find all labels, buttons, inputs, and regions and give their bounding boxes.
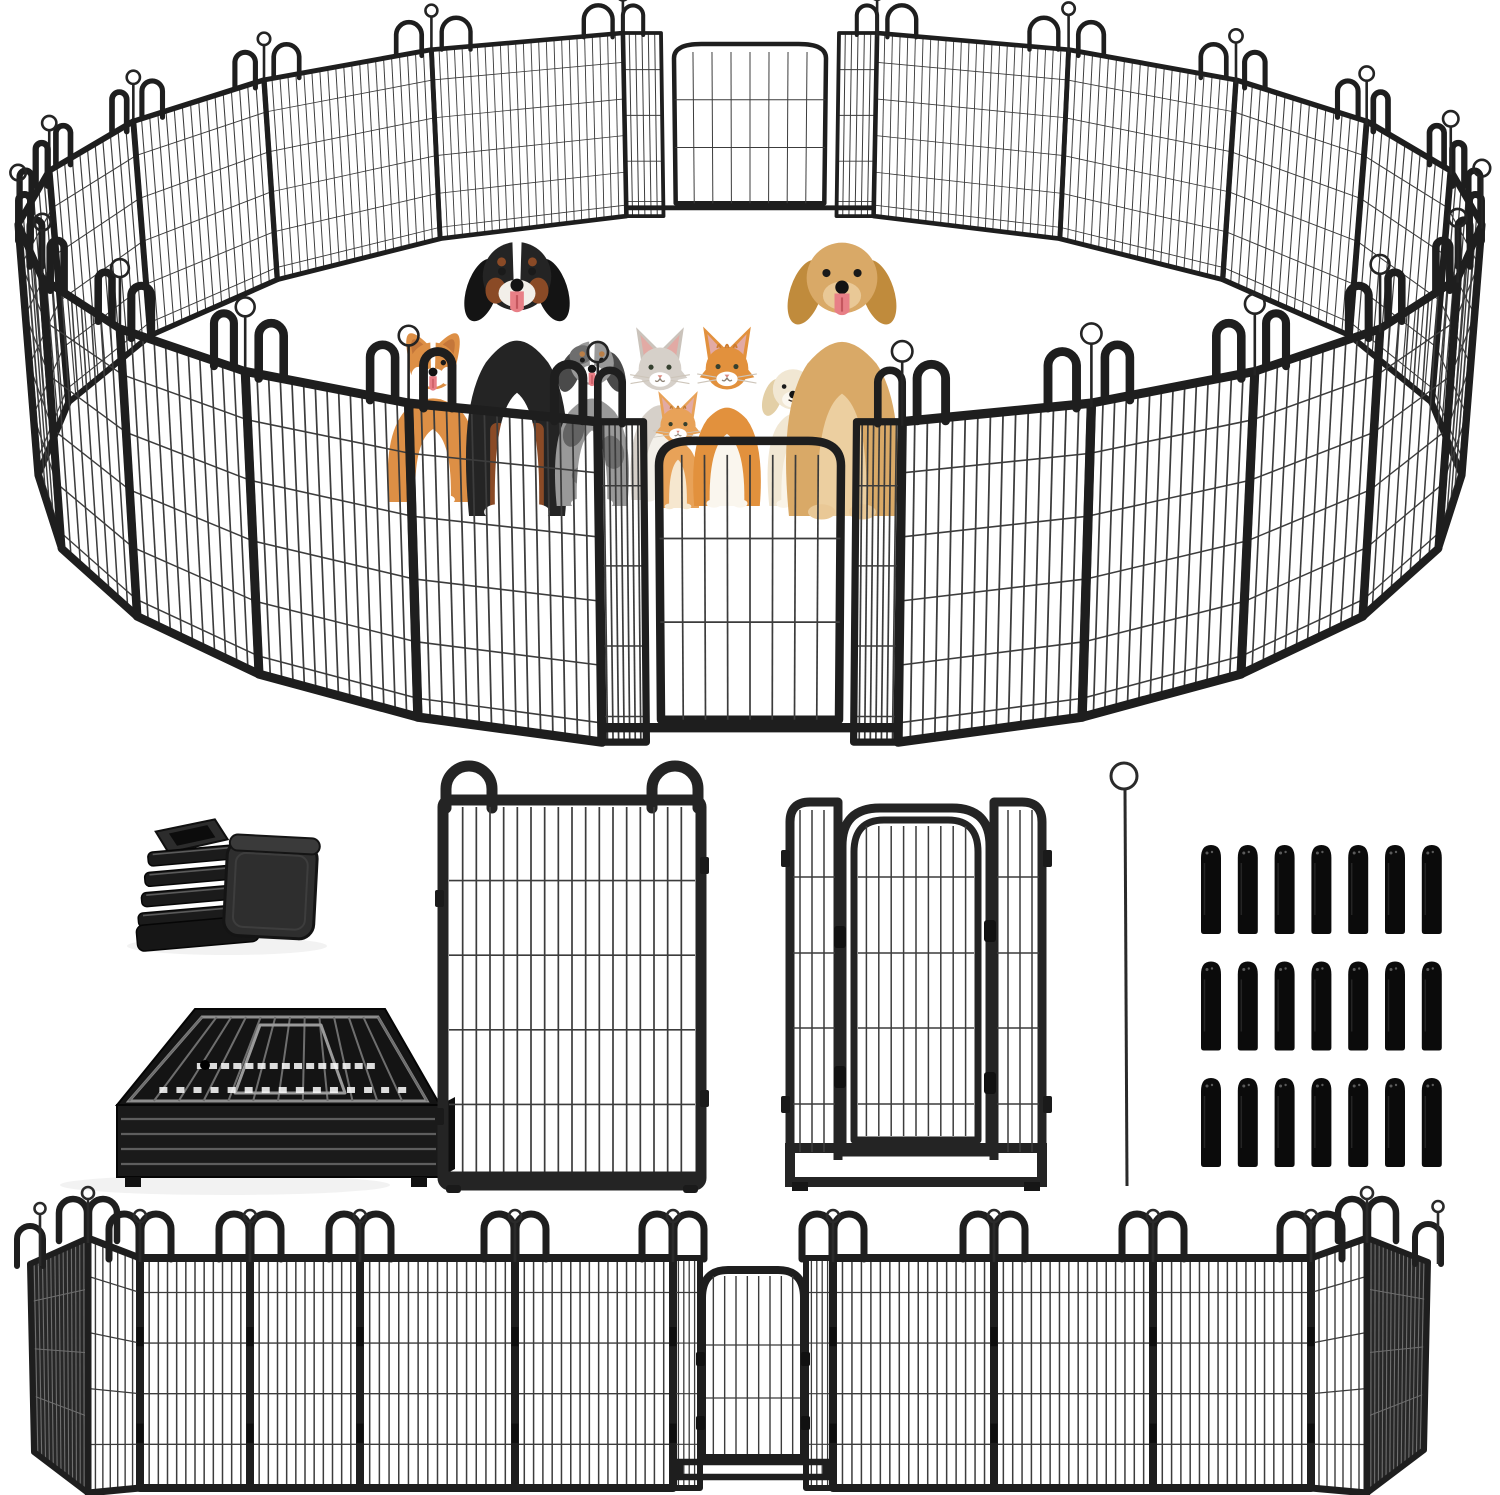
bottom-fence-row (17, 1187, 1444, 1493)
rubber-tip (1275, 962, 1295, 1051)
rubber-tip (1201, 1078, 1221, 1167)
ring-fence-panel (1060, 22, 1236, 279)
rubber-tip (1385, 1078, 1405, 1167)
animal-corgi (388, 333, 478, 504)
fence-panel-angled-right (1311, 1238, 1367, 1493)
rubber-tip (1238, 845, 1258, 934)
ring-fence-panel (431, 5, 626, 238)
fence-panel (994, 1258, 1153, 1488)
playpen-ring-back-panels (10, 0, 1482, 475)
fence-panel (1153, 1258, 1311, 1488)
rubber-tips-grid (1201, 845, 1442, 1167)
rubber-tip (1311, 845, 1331, 934)
corner-cap-front (223, 834, 320, 940)
rubber-tip (1311, 1078, 1331, 1167)
ring-fence-panel (898, 352, 1091, 743)
ring-fence-panel (245, 323, 418, 717)
fence-panel (140, 1258, 250, 1488)
rubber-tip (1348, 845, 1368, 934)
product-image-dog-playpen (0, 0, 1500, 1495)
rubber-tip (1385, 962, 1405, 1051)
rubber-tip (1422, 962, 1442, 1051)
ring-fence-panel (1082, 323, 1255, 717)
door-side-strip (623, 33, 664, 216)
door-side-strip (837, 33, 878, 216)
rubber-tip (1201, 962, 1221, 1051)
fence-panel (515, 1258, 673, 1488)
fence-panel (833, 1258, 994, 1488)
fence-panel-angled-left (88, 1238, 140, 1493)
rubber-tip (1275, 845, 1295, 934)
fence-panel (250, 1258, 360, 1488)
door-side-strip (806, 1258, 833, 1488)
rubber-tip (1311, 962, 1331, 1051)
ring-back-door-panel (617, 0, 877, 216)
rubber-tip (1422, 1078, 1442, 1167)
ring-fence-panel (264, 22, 440, 279)
rubber-tip (1238, 962, 1258, 1051)
square-corner-caps (127, 816, 327, 955)
bottom-row-door-panel (673, 1258, 833, 1488)
rubber-tip (1348, 1078, 1368, 1167)
fence-panel-edge-right (1367, 1238, 1428, 1493)
ground-stake-pin (1111, 763, 1137, 1186)
ring-fence-panel (874, 5, 1069, 238)
sample-door-panel (781, 802, 1052, 1191)
folded-panel-stack (60, 1009, 455, 1195)
rubber-tip (1348, 962, 1368, 1051)
fence-panel-edge-left (30, 1238, 88, 1493)
door-side-strip (673, 1258, 700, 1488)
rubber-tip (1422, 845, 1442, 934)
rubber-tip (1201, 845, 1221, 934)
rubber-tip (1238, 1078, 1258, 1167)
sample-fence-panel (435, 766, 709, 1193)
playpen-scene (0, 0, 1500, 1495)
fence-panel (360, 1258, 515, 1488)
rubber-tip (1385, 845, 1405, 934)
rubber-tip (1275, 1078, 1295, 1167)
